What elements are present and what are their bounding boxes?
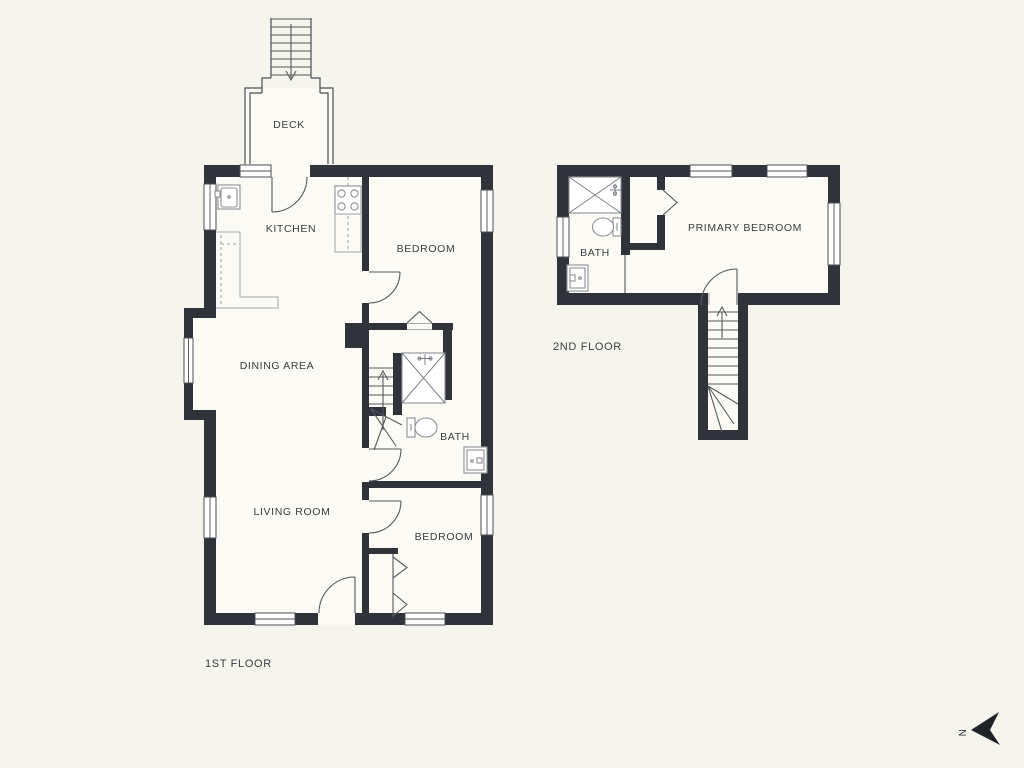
wall [481, 165, 493, 625]
second-floor-plan: BATH PRIMARY BEDROOM 2ND FLOOR [553, 165, 840, 440]
room-label-bedroom-bottom: BEDROOM [415, 531, 474, 543]
room-label-dining: DINING AREA [240, 360, 315, 372]
deck-door-opening [271, 165, 310, 178]
kitchen-sink [215, 185, 240, 209]
deck-stairs [262, 18, 320, 93]
wall [184, 410, 216, 420]
floor1-label: 1ST FLOOR [205, 658, 272, 670]
bath-sink [464, 447, 487, 473]
wall [432, 323, 453, 330]
first-floor-plan: DECK KITCHEN BEDROOM DINING AREA BATH LI… [184, 18, 493, 670]
north-arrow-icon: N [956, 712, 1000, 745]
wall [362, 482, 369, 500]
wall [698, 293, 708, 440]
room-label-deck: DECK [273, 119, 305, 131]
wall [393, 353, 402, 415]
wall [738, 293, 840, 305]
wall [365, 548, 398, 554]
wall [657, 177, 665, 190]
wall [698, 430, 748, 440]
floor-plan-drawing: DECK KITCHEN BEDROOM DINING AREA BATH LI… [0, 0, 1024, 768]
room-label-bath: BATH [440, 431, 470, 443]
chimney-block [345, 323, 362, 348]
room-label-primary-bedroom: PRIMARY BEDROOM [688, 222, 802, 234]
wall [362, 303, 369, 448]
shower [402, 353, 445, 403]
front-door-opening [318, 613, 355, 626]
wall [369, 481, 481, 488]
wall [362, 533, 369, 625]
floor-plan-page: DECK KITCHEN BEDROOM DINING AREA BATH LI… [0, 0, 1024, 768]
bath-sink [567, 265, 588, 291]
shower [569, 177, 621, 213]
toilet [593, 218, 622, 236]
stairs-down-arrow [286, 24, 296, 80]
room-label-bedroom-top: BEDROOM [397, 243, 456, 255]
north-label: N [956, 729, 967, 737]
floor2-label: 2ND FLOOR [553, 341, 622, 353]
room-label-kitchen: KITCHEN [266, 223, 317, 235]
wall [362, 177, 369, 271]
room-label-bath2: BATH [580, 247, 610, 259]
stove [335, 186, 361, 214]
wall [738, 293, 748, 440]
wall [557, 293, 698, 305]
room-label-living: LIVING ROOM [254, 506, 331, 518]
wall [369, 323, 407, 330]
toilet [407, 418, 437, 437]
wall [184, 308, 216, 318]
wall [621, 243, 665, 250]
